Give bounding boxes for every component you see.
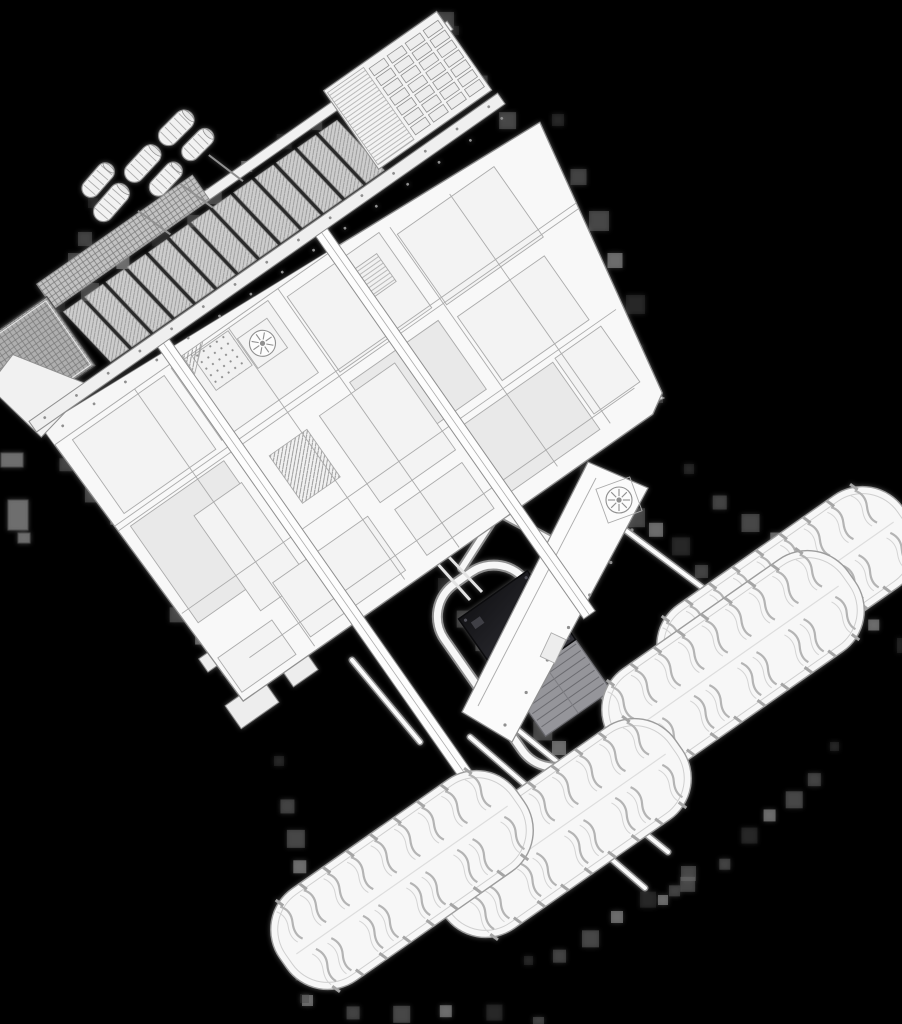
render-viewport [0,0,902,1024]
machine-wireframe-svg [0,0,902,1024]
